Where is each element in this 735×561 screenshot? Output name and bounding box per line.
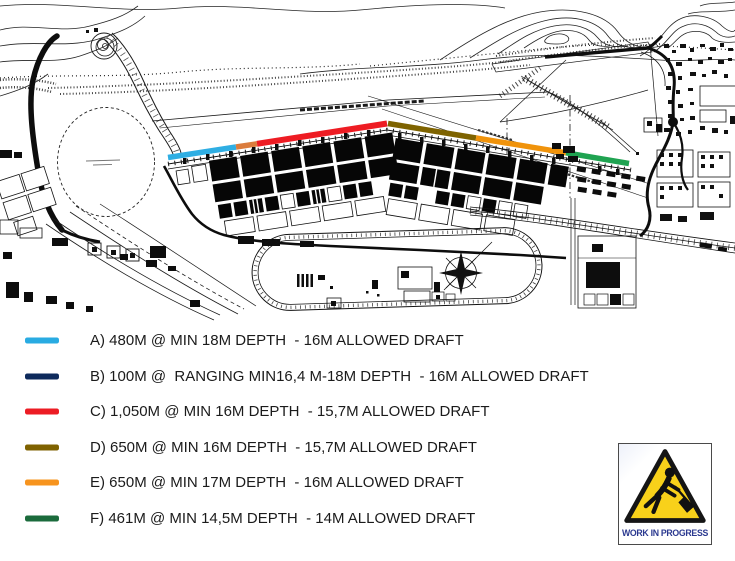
- port-plan-map: [0, 0, 735, 330]
- ring-road: [251, 226, 543, 311]
- legend-label: D) 650M @ MIN 16M DEPTH - 15,7M ALLOWED …: [90, 439, 477, 456]
- shore-stipple: [0, 38, 660, 94]
- legend-item: B) 100M @ RANGING MIN16,4 M-18M DEPTH - …: [0, 359, 620, 395]
- legend-swatch: [25, 337, 59, 344]
- legend-label: A) 480M @ MIN 18M DEPTH - 16M ALLOWED DR…: [90, 332, 464, 349]
- compass-rose-icon: [439, 242, 492, 295]
- legend-label: B) 100M @ RANGING MIN16,4 M-18M DEPTH - …: [90, 368, 589, 385]
- legend-swatch: [25, 444, 59, 451]
- legend-item: D) 650M @ MIN 16M DEPTH - 15,7M ALLOWED …: [0, 430, 620, 466]
- wip-sign: WORK IN PROGRESS: [618, 443, 712, 545]
- berth-segment-a: [168, 147, 236, 158]
- tank-circle: [58, 108, 155, 217]
- legend-swatch: [25, 479, 59, 486]
- breakwater: [31, 36, 100, 242]
- legend: A) 480M @ MIN 18M DEPTH - 16M ALLOWED DR…: [0, 323, 620, 536]
- legend-item: A) 480M @ MIN 18M DEPTH - 16M ALLOWED DR…: [0, 323, 620, 359]
- page: A) 480M @ MIN 18M DEPTH - 16M ALLOWED DR…: [0, 0, 735, 561]
- warning-triangle-icon: [620, 446, 710, 528]
- berth-segment-b: [236, 144, 257, 147]
- legend-item: E) 650M @ MIN 17M DEPTH - 16M ALLOWED DR…: [0, 465, 620, 501]
- legend-swatch: [25, 408, 59, 415]
- legend-swatch: [25, 515, 59, 522]
- legend-label: C) 1,050M @ MIN 16M DEPTH - 15,7M ALLOWE…: [90, 403, 489, 420]
- warehouse-rows: [573, 166, 645, 201]
- legend-item: F) 461M @ MIN 14,5M DEPTH - 14M ALLOWED …: [0, 501, 620, 537]
- oval-interior: [297, 267, 440, 302]
- east-grid-yards: [657, 150, 730, 222]
- legend-swatch: [25, 373, 59, 380]
- map-canvas: [0, 0, 735, 330]
- wip-sign-label: WORK IN PROGRESS: [620, 528, 709, 538]
- west-blocks: [0, 166, 62, 237]
- southwest-buildings: [3, 246, 341, 312]
- legend-label: F) 461M @ MIN 14,5M DEPTH - 14M ALLOWED …: [90, 510, 475, 527]
- legend-item: C) 1,050M @ MIN 16M DEPTH - 15,7M ALLOWE…: [0, 394, 620, 430]
- legend-label: E) 650M @ MIN 17M DEPTH - 16M ALLOWED DR…: [90, 474, 464, 491]
